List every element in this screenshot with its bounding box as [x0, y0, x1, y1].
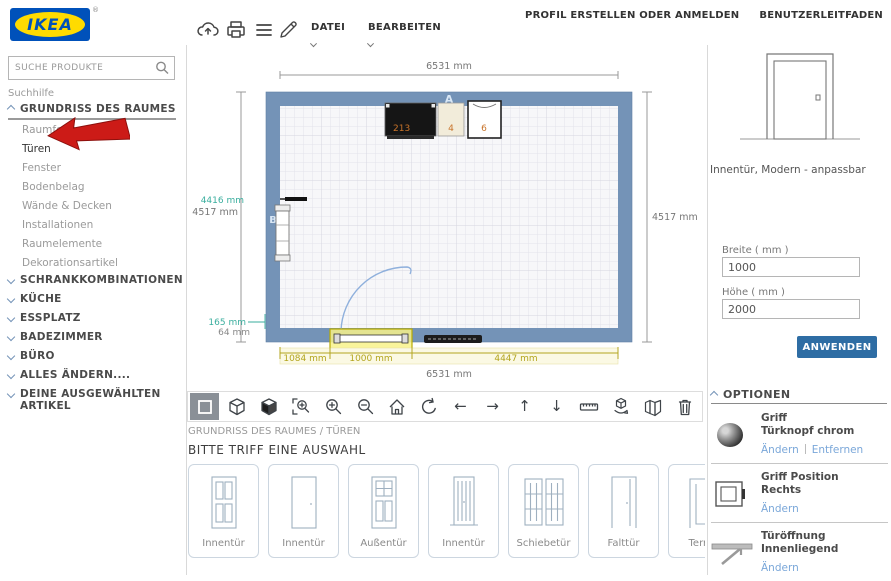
- remove-link[interactable]: Entfernen: [812, 444, 863, 456]
- door-gallery: Innentür Innentür Außentür Innentür Schi…: [188, 464, 705, 564]
- door-preview-image: [735, 46, 865, 146]
- sidebar-item-bodenbelag[interactable]: Bodenbelag: [22, 181, 85, 193]
- menu-bearbeiten[interactable]: BEARBEITEN: [368, 22, 441, 33]
- door-swing-icon: [711, 538, 753, 568]
- svg-text:1084 mm: 1084 mm: [283, 354, 326, 364]
- section-essplatz[interactable]: ESSPLATZ: [8, 312, 81, 324]
- breadcrumb: GRUNDRISS DES RAUMES / TÜREN: [188, 426, 360, 437]
- floor-plan-canvas[interactable]: 6531 mm A B 213 4 6 4416 mm 4517 mm: [186, 45, 708, 395]
- ikea-logo-oval: IKEA: [15, 12, 85, 37]
- user-guide-link[interactable]: BENUTZERLEITFADEN: [759, 10, 883, 21]
- menu-bearbeiten-label: BEARBEITEN: [368, 22, 441, 33]
- search-input[interactable]: [15, 63, 154, 73]
- view-toolbar: ← → ↑ ↓: [187, 391, 703, 422]
- view-3d-solid-button[interactable]: [254, 393, 283, 420]
- wall-view-button[interactable]: [638, 393, 667, 420]
- slat-door-icon: [440, 474, 488, 532]
- door-card-slat[interactable]: Innentür: [428, 464, 499, 558]
- item-list-icon[interactable]: [252, 18, 276, 42]
- width-input[interactable]: [722, 257, 860, 277]
- door-card-plain[interactable]: Innentür: [268, 464, 339, 558]
- zoom-out-button[interactable]: [350, 393, 379, 420]
- option-name: Griff: [761, 412, 888, 425]
- menu-datei-label: DATEI: [311, 22, 345, 33]
- home-button[interactable]: [382, 393, 411, 420]
- handle-position-icon: [713, 478, 747, 510]
- change-link[interactable]: Ändern: [761, 444, 799, 456]
- chevron-up-icon: [710, 390, 718, 398]
- section-grundriss-des-raumes[interactable]: GRUNDRISS DES RAUMES: [8, 103, 176, 115]
- dimension-corner: 165 mm 64 mm: [208, 314, 265, 338]
- pan-up-icon: ↑: [518, 399, 531, 414]
- measure-button[interactable]: [574, 393, 603, 420]
- option-row-griff: Griff Türknopf chrom ÄndernEntfernen: [711, 405, 888, 464]
- section-label: SCHRANKKOMBINATIONEN: [20, 274, 183, 286]
- logo-trademark: ®: [92, 6, 99, 14]
- dimension-bottom-segments: 1084 mm 1000 mm 4447 mm: [280, 347, 618, 364]
- sidebar-item-installationen[interactable]: Installationen: [22, 219, 93, 231]
- chevron-down-icon: [7, 352, 15, 360]
- door-card-label: Falttür: [607, 538, 639, 549]
- door-card-label: Innentür: [442, 538, 485, 549]
- option-name: Türöffnung: [761, 530, 888, 543]
- door-card-sliding[interactable]: Schiebetür: [508, 464, 579, 558]
- chevron-down-icon: [7, 390, 15, 398]
- pan-down-icon: ↓: [550, 399, 563, 414]
- height-label: Höhe ( mm ): [722, 287, 785, 298]
- svg-text:4: 4: [448, 124, 454, 134]
- sliding-door-icon: [520, 474, 568, 532]
- dimension-left: 4416 mm 4517 mm: [192, 92, 246, 342]
- height-input[interactable]: [722, 299, 860, 319]
- exterior-door-icon: [360, 474, 408, 532]
- pan-right-icon: →: [486, 399, 499, 414]
- svg-text:4447 mm: 4447 mm: [494, 354, 537, 364]
- pan-down-button[interactable]: ↓: [542, 393, 571, 420]
- section-grundriss-label: GRUNDRISS DES RAUMES: [20, 103, 176, 115]
- pan-left-icon: ←: [454, 399, 467, 414]
- svg-text:6: 6: [481, 124, 487, 134]
- section-badezimmer[interactable]: BADEZIMMER: [8, 331, 103, 343]
- print-icon[interactable]: [224, 18, 248, 42]
- door-card-terrace[interactable]: Terras: [668, 464, 705, 558]
- section-label: ALLES ÄNDERN....: [20, 369, 130, 381]
- ikea-logo-text: IKEA: [27, 15, 73, 34]
- chevron-down-icon: [7, 333, 15, 341]
- svg-text:1000 mm: 1000 mm: [349, 354, 392, 364]
- product-name: Innentür, Modern - anpassbar: [710, 164, 890, 176]
- door-card-folding[interactable]: Falttür: [588, 464, 659, 558]
- chevron-down-icon: [7, 276, 15, 284]
- svg-text:213: 213: [393, 124, 410, 134]
- section-alles-aendern[interactable]: ALLES ÄNDERN....: [8, 369, 130, 381]
- door-card-label: Terras: [689, 538, 705, 549]
- pan-up-button[interactable]: ↑: [510, 393, 539, 420]
- section-label: BADEZIMMER: [20, 331, 103, 343]
- door-card-label: Innentür: [282, 538, 325, 549]
- menu-datei[interactable]: DATEI: [311, 22, 345, 33]
- dimension-right: 4517 mm: [642, 92, 698, 342]
- section-label: DEINE AUSGEWÄHLTEN ARTIKEL: [20, 388, 176, 412]
- svg-text:4416 mm: 4416 mm: [201, 196, 244, 206]
- zoom-in-button[interactable]: [318, 393, 347, 420]
- search-icon[interactable]: [154, 60, 170, 76]
- dimension-bottom-total: 6531 mm: [426, 369, 472, 380]
- section-ausgewaehlte-artikel[interactable]: DEINE AUSGEWÄHLTEN ARTIKEL: [8, 388, 176, 412]
- product-search-box: [8, 56, 175, 80]
- header-links: PROFIL ERSTELLEN ODER ANMELDEN BENUTZERL…: [525, 10, 883, 21]
- options-title: OPTIONEN: [723, 388, 791, 401]
- change-link[interactable]: Ändern: [761, 503, 799, 515]
- door-card-label: Außentür: [360, 538, 406, 549]
- section-label: ESSPLATZ: [20, 312, 81, 324]
- rotate-view-button[interactable]: [414, 393, 443, 420]
- apply-button[interactable]: ANWENDEN: [797, 336, 877, 358]
- sidebar-item-waende-decken[interactable]: Wände & Decken: [22, 200, 112, 212]
- doorknob-chrome-icon: [717, 423, 743, 447]
- terrace-door-icon: [680, 474, 706, 532]
- door-card-exterior[interactable]: Außentür: [348, 464, 419, 558]
- section-label: KÜCHE: [20, 293, 62, 305]
- rotate-item-button[interactable]: [606, 393, 635, 420]
- delete-button[interactable]: [670, 393, 699, 420]
- view-3d-wireframe-button[interactable]: [222, 393, 251, 420]
- door-card-panel[interactable]: Innentür: [188, 464, 259, 558]
- search-help-link[interactable]: Suchhilfe: [8, 88, 54, 99]
- options-section-header[interactable]: OPTIONEN: [711, 388, 791, 401]
- svg-text:4517 mm: 4517 mm: [652, 212, 698, 223]
- sidebar-item-fenster[interactable]: Fenster: [22, 162, 61, 174]
- ikea-logo[interactable]: IKEA: [10, 8, 90, 41]
- svg-text:165 mm: 165 mm: [208, 318, 246, 328]
- panel-door-icon: [200, 474, 248, 532]
- sidebar-item-dekorationsartikel[interactable]: Dekorationsartikel: [22, 257, 118, 269]
- change-link[interactable]: Ändern: [761, 562, 799, 574]
- option-value: Innenliegend: [761, 543, 888, 556]
- svg-text:6531 mm: 6531 mm: [426, 61, 472, 72]
- plain-door-icon: [280, 474, 328, 532]
- option-name: Griff Position: [761, 471, 888, 484]
- pan-right-button[interactable]: →: [478, 393, 507, 420]
- door-card-label: Innentür: [202, 538, 245, 549]
- pan-left-button[interactable]: ←: [446, 393, 475, 420]
- section-kueche[interactable]: KÜCHE: [8, 293, 62, 305]
- section-label: BÜRO: [20, 350, 55, 362]
- width-label: Breite ( mm ): [722, 245, 789, 256]
- red-pointer-arrow: [46, 115, 130, 151]
- options-divider: [711, 403, 887, 404]
- section-buero[interactable]: BÜRO: [8, 350, 55, 362]
- chevron-down-icon: [7, 371, 15, 379]
- gallery-heading: BITTE TRIFF EINE AUSWAHL: [188, 443, 366, 457]
- dimension-top: 6531 mm: [280, 61, 618, 79]
- plan-kitchen-units[interactable]: 213 4 6: [385, 101, 501, 139]
- profile-link[interactable]: PROFIL ERSTELLEN ODER ANMELDEN: [525, 10, 739, 21]
- pencil-icon[interactable]: [276, 18, 300, 42]
- save-cloud-icon[interactable]: [196, 18, 220, 42]
- folding-door-icon: [600, 474, 648, 532]
- chevron-down-icon: [7, 314, 15, 322]
- door-card-label: Schiebetür: [517, 538, 571, 549]
- option-value: Rechts: [761, 484, 888, 497]
- plan-radiator-bottom[interactable]: [424, 335, 482, 343]
- svg-text:64 mm: 64 mm: [218, 328, 250, 338]
- option-row-tueroeffnung: Türöffnung Innenliegend Ändern: [711, 523, 888, 581]
- svg-text:4517 mm: 4517 mm: [192, 207, 238, 218]
- view-2d-button[interactable]: [190, 393, 219, 420]
- chevron-down-icon: [7, 295, 15, 303]
- option-row-griff-position: Griff Position Rechts Ändern: [711, 464, 888, 523]
- sidebar-item-raumelemente[interactable]: Raumelemente: [22, 238, 102, 250]
- section-schrankkombinationen[interactable]: SCHRANKKOMBINATIONEN: [8, 274, 183, 286]
- options-list: Griff Türknopf chrom ÄndernEntfernen Gri…: [711, 405, 888, 581]
- option-value: Türknopf chrom: [761, 425, 888, 438]
- zoom-to-selection-button[interactable]: [286, 393, 315, 420]
- chevron-up-icon: [7, 105, 15, 113]
- link-separator: [805, 444, 806, 454]
